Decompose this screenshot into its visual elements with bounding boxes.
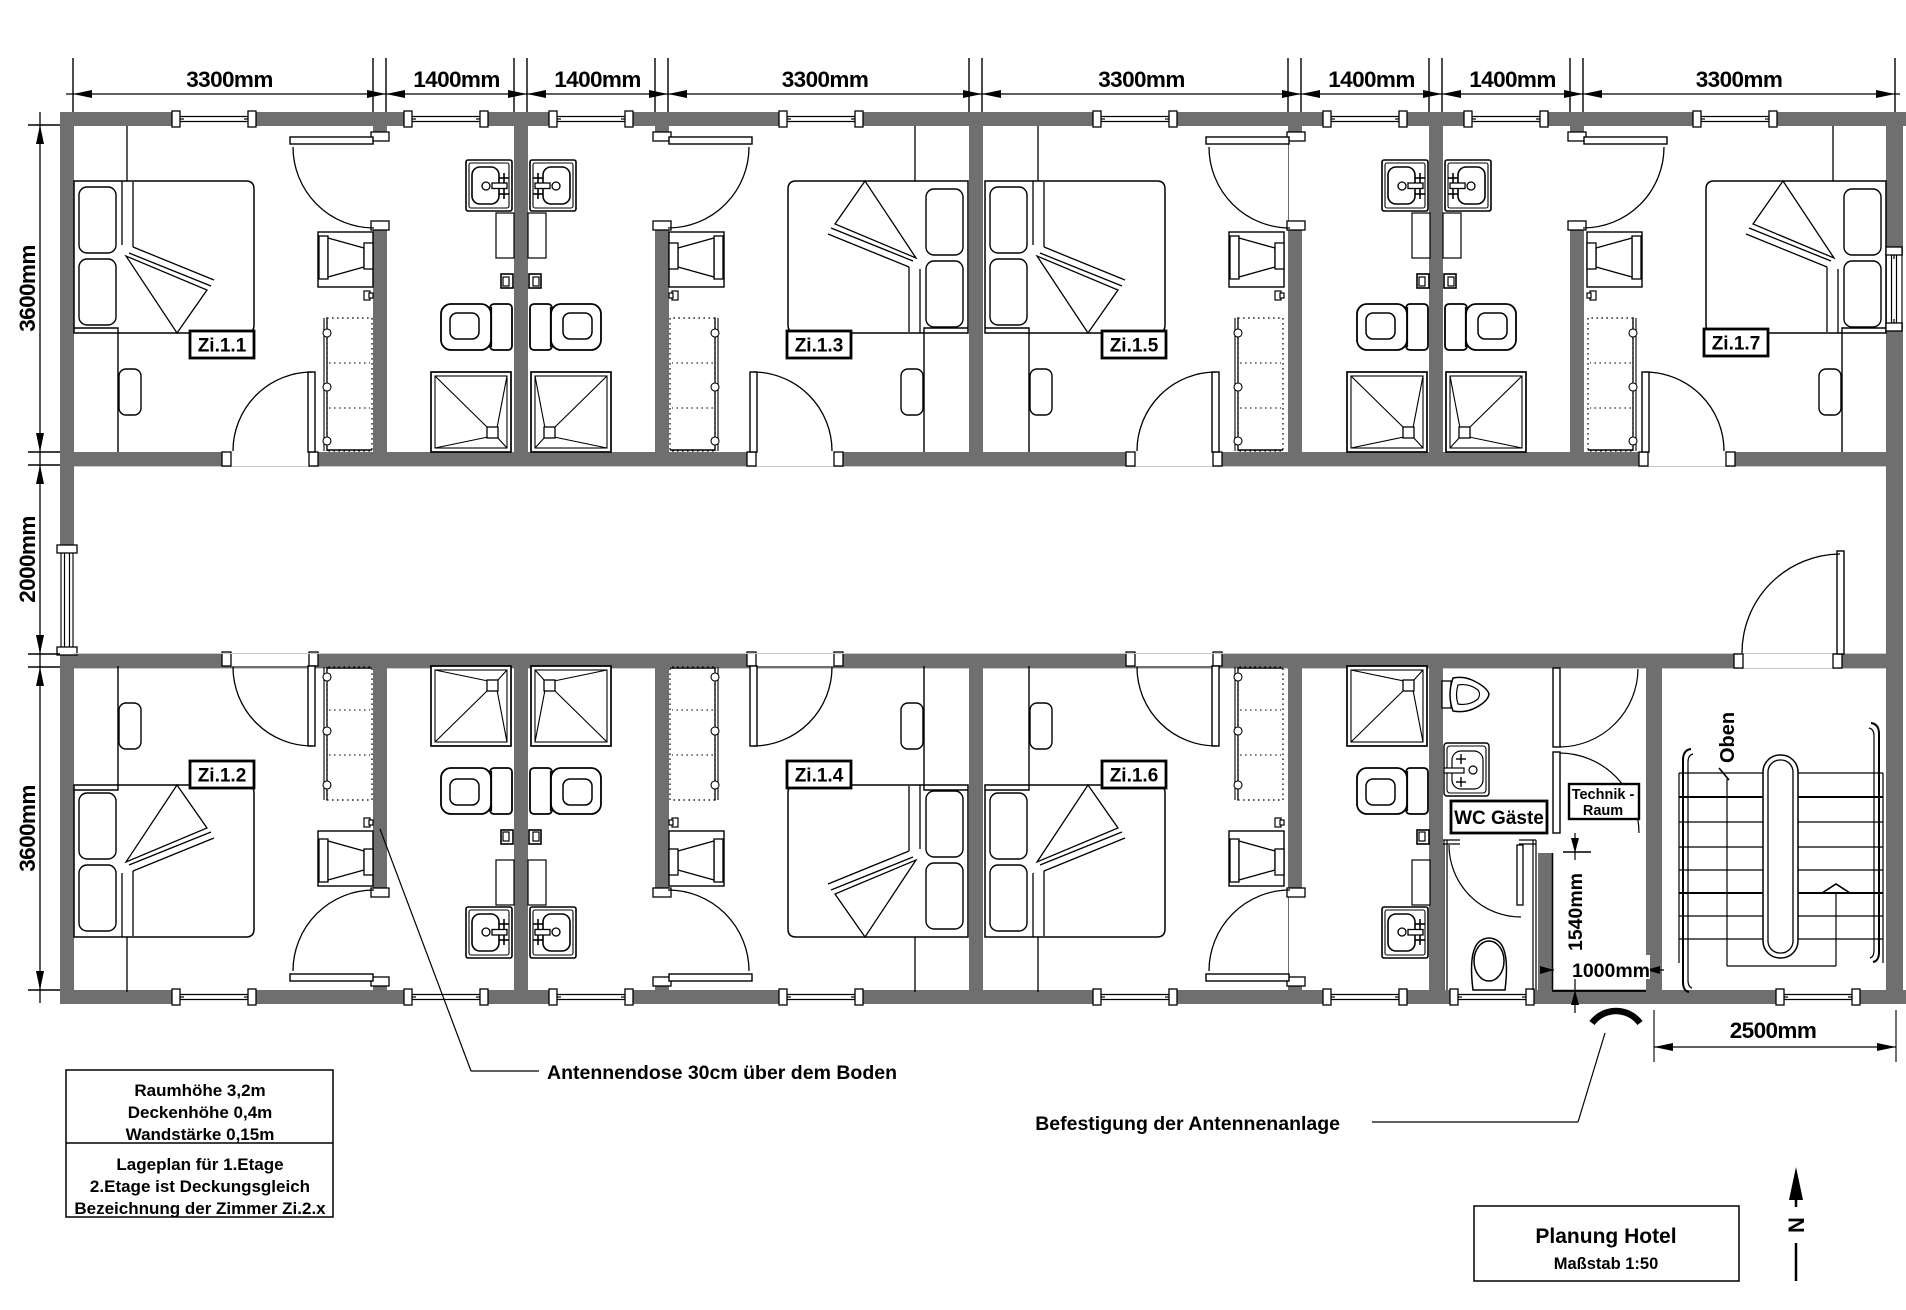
svg-text:Zi.1.3: Zi.1.3	[795, 336, 844, 357]
svg-text:Zi.1.7: Zi.1.7	[1712, 334, 1761, 355]
svg-text:Raum: Raum	[1583, 803, 1623, 819]
svg-text:Befestigung der Antennenanlage: Befestigung der Antennenanlage	[1035, 1113, 1340, 1135]
svg-text:3300mm: 3300mm	[1696, 67, 1782, 92]
svg-text:Zi.1.5: Zi.1.5	[1110, 336, 1159, 357]
svg-text:Lageplan für 1.Etage: Lageplan für 1.Etage	[116, 1155, 283, 1174]
svg-text:1540mm: 1540mm	[1565, 873, 1587, 951]
svg-text:Planung Hotel: Planung Hotel	[1535, 1225, 1676, 1248]
svg-text:Maßstab 1:50: Maßstab 1:50	[1554, 1255, 1659, 1273]
svg-text:2500mm: 2500mm	[1730, 1018, 1816, 1043]
svg-text:2000mm: 2000mm	[15, 516, 40, 602]
svg-text:2.Etage ist Deckungsgleich: 2.Etage ist Deckungsgleich	[90, 1177, 310, 1196]
svg-text:Zi.1.6: Zi.1.6	[1110, 766, 1159, 787]
svg-text:Zi.1.1: Zi.1.1	[198, 336, 247, 357]
svg-text:Bezeichnung der Zimmer Zi.2.x: Bezeichnung der Zimmer Zi.2.x	[74, 1199, 326, 1218]
svg-text:WC Gäste: WC Gäste	[1454, 808, 1544, 829]
svg-text:N: N	[1784, 1217, 1809, 1233]
svg-text:1400mm: 1400mm	[1328, 67, 1414, 92]
svg-text:1400mm: 1400mm	[554, 67, 640, 92]
svg-text:Zi.1.2: Zi.1.2	[198, 766, 247, 787]
svg-text:3300mm: 3300mm	[186, 67, 272, 92]
svg-text:Oben: Oben	[1717, 712, 1739, 763]
svg-text:1400mm: 1400mm	[1469, 67, 1555, 92]
svg-text:Technik -: Technik -	[1572, 787, 1635, 803]
svg-text:3300mm: 3300mm	[782, 67, 868, 92]
svg-text:Wandstärke 0,15m: Wandstärke 0,15m	[126, 1125, 275, 1144]
svg-text:3600mm: 3600mm	[15, 785, 40, 871]
svg-text:Zi.1.4: Zi.1.4	[795, 766, 844, 787]
svg-text:Raumhöhe 3,2m: Raumhöhe 3,2m	[134, 1081, 265, 1100]
svg-text:3300mm: 3300mm	[1098, 67, 1184, 92]
svg-text:1000mm: 1000mm	[1572, 960, 1650, 982]
svg-text:Antennendose 30cm über dem Bod: Antennendose 30cm über dem Boden	[547, 1062, 897, 1084]
svg-text:1400mm: 1400mm	[413, 67, 499, 92]
svg-text:3600mm: 3600mm	[15, 245, 40, 331]
svg-text:Deckenhöhe 0,4m: Deckenhöhe 0,4m	[128, 1103, 273, 1122]
